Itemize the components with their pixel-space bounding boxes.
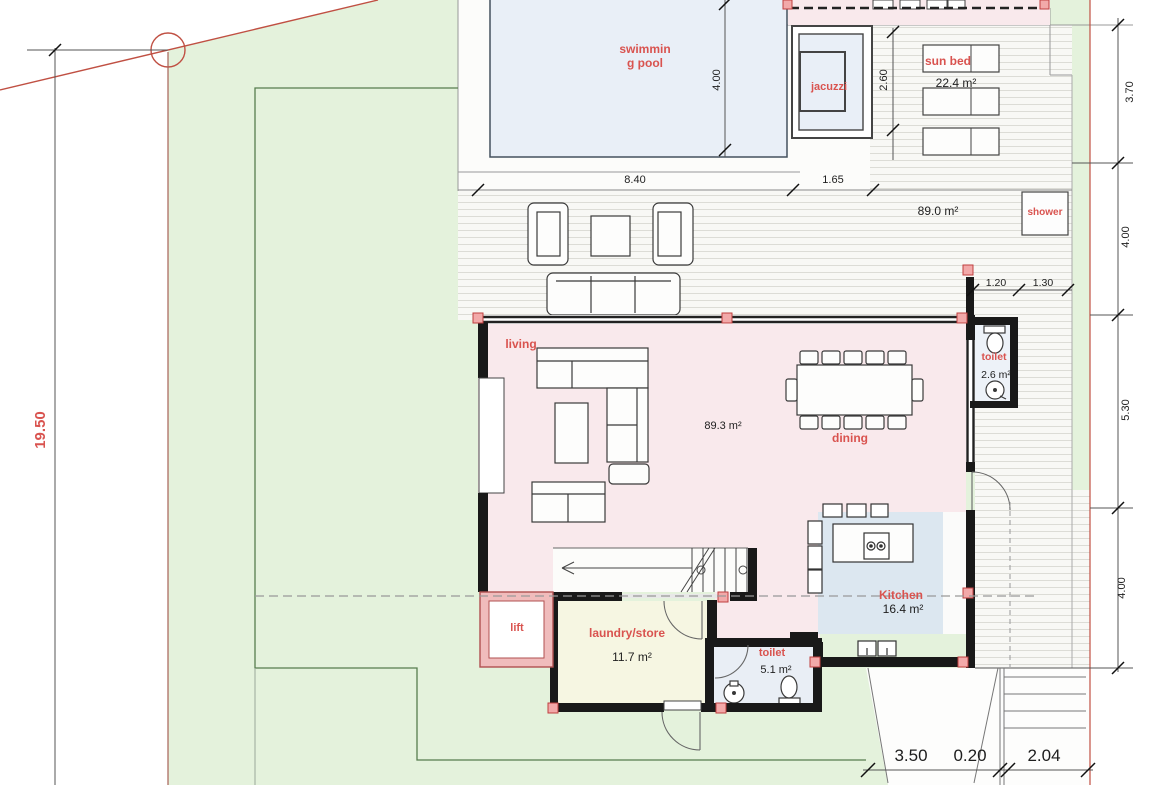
toilet-upper-area: 2.6 m² (971, 369, 1021, 381)
deck-armchair-left (528, 203, 568, 265)
dining-table (797, 365, 912, 415)
toilet-width-b-dim: 1.30 (1023, 277, 1063, 289)
dining-furniture (786, 351, 923, 429)
deck-coffee-table (591, 216, 630, 256)
sun-bed-area: 22.4 m² (921, 76, 991, 90)
sun-bed-label: sun bed (913, 54, 983, 68)
stairwell (553, 548, 749, 592)
bottom-a-dim: 3.50 (881, 746, 941, 764)
coffee-table (555, 403, 588, 463)
shower-label: shower (1015, 207, 1075, 219)
exterior-door-leaf (664, 701, 701, 710)
driveway-ramp (866, 668, 1090, 785)
right-upper-dim: 4.00 (1119, 217, 1133, 257)
laundry-area: 11.7 m² (597, 650, 667, 663)
deck-wall-stub (966, 277, 974, 317)
right-middle-dim: 5.30 (1119, 390, 1133, 430)
bottom-c-dim: 2.04 (1014, 746, 1074, 764)
deck-sofa (547, 273, 680, 315)
toilet-width-a-dim: 1.20 (976, 277, 1016, 289)
toilet-lower-area: 5.1 m² (751, 664, 801, 677)
loveseat (532, 482, 605, 522)
jacuzzi-label: jacuzzi (794, 80, 864, 94)
bottom-b-dim: 0.20 (940, 746, 1000, 764)
living-label: living (491, 337, 551, 351)
upper-room-cut (788, 0, 1050, 25)
left-door-panel (479, 378, 504, 493)
pool-to-jacuzzi-dim: 1.65 (813, 174, 853, 187)
right-lower-dim: 4.00 (1115, 568, 1129, 608)
swimming-pool-label-line1: swimmin (605, 42, 685, 56)
dining-label: dining (820, 431, 880, 445)
swimming-pool-label-line2: g pool (605, 56, 685, 70)
pool-height-dim: 4.00 (710, 60, 724, 100)
floor-plan-linework (0, 0, 1170, 785)
laundry-label: laundry/store (572, 626, 682, 640)
site-left-dim: 19.50 (31, 398, 49, 462)
right-top-dim: 3.70 (1123, 72, 1137, 112)
kitchen-label: Kitchen (866, 588, 936, 602)
lift-label: lift (497, 622, 537, 635)
toilet-lower-label: toilet (747, 647, 797, 660)
pool-width-dim: 8.40 (610, 174, 660, 187)
swimming-pool (490, 0, 787, 157)
living-area: 89.3 m² (693, 420, 753, 433)
toilet-upper-label: toilet (969, 351, 1019, 363)
kitchen-area: 16.4 m² (868, 602, 938, 615)
deck-armchair-right (653, 203, 693, 265)
floor-plan: swimmin g pool 4.00 jacuzzi 2.60 sun bed… (0, 0, 1170, 785)
terrace-area: 89.0 m² (898, 204, 978, 218)
jacuzzi-height-dim: 2.60 (877, 60, 891, 100)
